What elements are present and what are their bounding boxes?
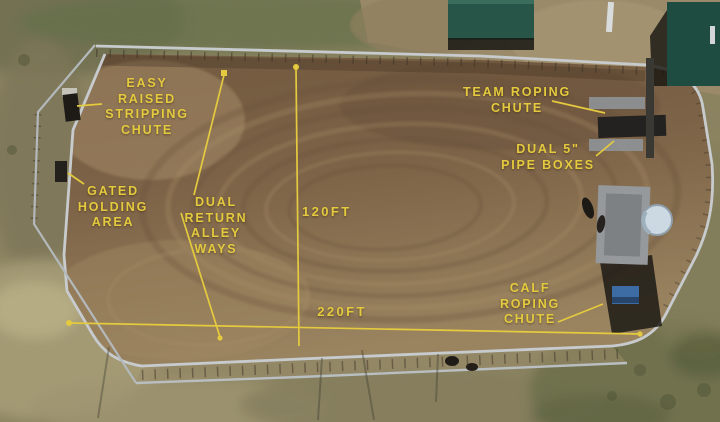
label-line: ALLEY <box>185 226 248 242</box>
width-dimension-label: 120FT <box>302 204 352 220</box>
calf-chute-structure <box>612 286 639 304</box>
label-line: CALF <box>500 281 560 297</box>
label-line: CHUTE <box>105 123 189 139</box>
length-dimension-label: 220FT <box>317 304 367 320</box>
animal <box>445 356 459 366</box>
label-line: 120FT <box>302 204 352 220</box>
stripping-chute-label: EASY RAISED STRIPPING CHUTE <box>105 76 189 138</box>
label-line: RETURN <box>185 211 248 227</box>
holding-area-gate <box>55 161 67 182</box>
label-line: DUAL 5" <box>501 142 595 158</box>
label-line: CHUTE <box>500 312 560 328</box>
team-roping-chute-label: TEAM ROPING CHUTE <box>463 85 571 116</box>
animal-2 <box>466 363 478 371</box>
label-line: 220FT <box>317 304 367 320</box>
label-line: WAYS <box>185 242 248 258</box>
label-line: DUAL <box>185 195 248 211</box>
label-line: RAISED <box>105 92 189 108</box>
return-alleys-label: DUAL RETURN ALLEY WAYS <box>185 195 248 257</box>
barn-roof-top <box>448 0 534 40</box>
label-line: STRIPPING <box>105 107 189 123</box>
barn-shadow <box>448 38 534 50</box>
calf-roping-chute-label: CALF ROPING CHUTE <box>500 281 560 328</box>
label-line: TEAM ROPING <box>463 85 571 101</box>
label-line: PIPE BOXES <box>501 158 595 174</box>
label-line: ROPING <box>500 297 560 313</box>
label-line: AREA <box>78 215 148 231</box>
gated-holding-area-label: GATED HOLDING AREA <box>78 184 148 231</box>
label-line: HOLDING <box>78 200 148 216</box>
label-line: CHUTE <box>463 101 571 117</box>
pipe-boxes-label: DUAL 5" PIPE BOXES <box>501 142 595 173</box>
label-line: EASY <box>105 76 189 92</box>
aerial-photo: EASY RAISED STRIPPING CHUTE GATED HOLDIN… <box>0 0 720 422</box>
white-pole-2 <box>710 26 715 44</box>
barn-roof-ridge <box>448 0 534 4</box>
label-line: GATED <box>78 184 148 200</box>
